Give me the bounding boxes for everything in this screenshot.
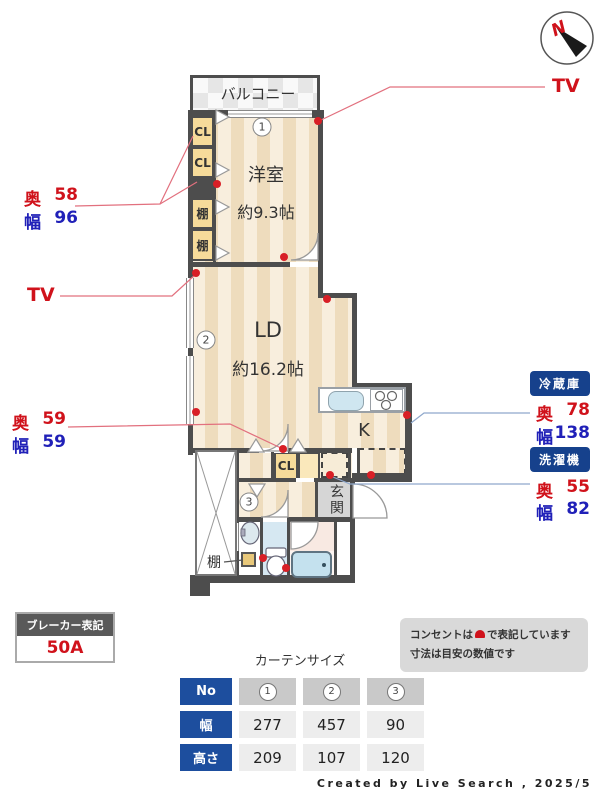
leader-washer [333,477,530,484]
curtain-col-2: 2 [303,678,360,705]
curtain-table: No 1 2 3 幅 277 457 90 高さ 209 107 120 [180,678,424,777]
marker-1: 1 [253,118,272,137]
note-line1-pre: コンセントは [410,629,473,641]
ld-size: 約16.2帖 [232,355,304,380]
depth-value: 59 [42,409,66,434]
closet-lower-depth: 奥 59 [12,409,66,434]
width-value: 82 [566,499,590,524]
depth-label: 奥 [24,185,41,210]
outlet-dot [282,564,290,572]
width-label: 幅 [24,208,41,233]
outlet-dot [323,295,331,303]
breaker-value: 50A [17,636,113,661]
width-value: 59 [42,432,66,457]
door-arcs [261,233,387,549]
depth-label: 奥 [12,409,29,434]
marker-1-num: 1 [259,121,266,134]
curtain-col-1: 1 [239,678,296,705]
depth-label: 奥 [536,400,553,425]
fridge-badge: 冷蔵庫 [530,371,590,396]
width-value: 96 [54,208,78,233]
outlet-dot [326,471,334,479]
leaf-marker [216,246,229,260]
stove-burners [376,392,397,410]
curtain-height-2: 107 [303,744,360,771]
breaker-box: ブレーカー表記 50A [15,612,115,663]
curtain-table-header-row: No 1 2 3 [180,678,424,705]
outlet-dot [367,471,375,479]
door-bathroom [291,522,318,549]
col-2-num: 2 [328,686,334,697]
note-line-2: 寸法は目安の数値です [410,645,578,664]
toilet-icon [266,548,286,576]
width-label: 幅 [536,499,553,524]
breaker-title: ブレーカー表記 [17,614,113,636]
ld-name: LD [254,318,282,342]
tv-annotation-top: TV [552,75,580,97]
col-1-num: 1 [264,686,270,697]
curtain-width-2: 457 [303,711,360,738]
width-label: 幅 [536,423,553,448]
leader-tv-top [319,87,545,121]
circled-1: 1 [259,683,277,701]
curtain-width-row: 幅 277 457 90 [180,711,424,738]
leaf-marker [216,200,229,214]
washer-width: 幅 82 [536,499,590,524]
marker-3: 3 [240,493,259,512]
curtain-table-title: カーテンサイズ [255,650,346,669]
outlet-dot [192,408,200,416]
closet-upper-depth: 奥 58 [24,185,78,210]
western-room-size: 約9.3帖 [237,199,294,223]
leader-fridge [411,413,530,423]
bathtub-drain [322,563,326,567]
closet-upper-width: 幅 96 [24,208,78,233]
outlet-dot [403,411,411,419]
shelf-lower-label: 棚 [207,552,221,572]
depth-value: 78 [566,400,590,425]
entrance-label: 玄関 [326,484,346,516]
outlet-symbol-icon [475,630,485,638]
curtain-width-1: 277 [239,711,296,738]
outlet-dot [280,253,288,261]
leader-tv-left [60,274,196,296]
curtain-width-label: 幅 [180,711,232,738]
balcony-label: バルコニー [221,83,296,104]
fridge-depth: 奥 78 [536,400,590,425]
compass: N [537,8,597,68]
curtain-height-1: 209 [239,744,296,771]
curtain-col-3: 3 [367,678,424,705]
marker-3-num: 3 [246,496,253,509]
leader-closet-lower [68,424,283,449]
note-box: コンセントはで表記しています 寸法は目安の数値です [400,618,588,672]
note-line-1: コンセントはで表記しています [410,626,578,645]
kitchen-label: K [358,420,370,441]
closet-lower-width: 幅 59 [12,432,66,457]
outlet-dot [314,117,322,125]
floor-plan-page: CL CL 棚 棚 CL [0,0,600,800]
door-washroom [261,490,288,517]
door-western-room [291,233,318,260]
leaf-marker [216,163,229,177]
curtain-height-label: 高さ [180,744,232,771]
curtain-no-label: No [180,678,232,705]
outlet-dot [213,180,221,188]
washer-badge: 洗濯機 [530,447,590,472]
circled-3: 3 [387,683,405,701]
washbasin-icon [241,522,259,544]
outlet-dot [259,554,267,562]
tv-annotation-left: TV [27,284,55,306]
outlet-dot [279,445,287,453]
curtain-height-row: 高さ 209 107 120 [180,744,424,771]
credit-text: Created by Live Search , 2025/5 [317,777,592,790]
width-value: 138 [555,423,591,448]
note-line1-post: で表記しています [487,629,571,641]
western-room-name: 洋室 [248,161,284,187]
depth-value: 58 [54,185,78,210]
red-leader-lines [60,87,545,449]
curtain-width-3: 90 [367,711,424,738]
door-entrance [353,484,387,518]
leaf-marker [248,439,264,452]
fridge-width: 幅 138 [536,423,590,448]
outlet-dot [192,269,200,277]
col-3-num: 3 [392,686,398,697]
marker-2-num: 2 [203,334,210,347]
width-label: 幅 [12,432,29,457]
circled-2: 2 [323,683,341,701]
leader-shelf [224,560,243,562]
curtain-height-3: 120 [367,744,424,771]
leaf-marker [290,439,306,452]
marker-2: 2 [197,331,216,350]
leaf-marker [216,110,229,124]
